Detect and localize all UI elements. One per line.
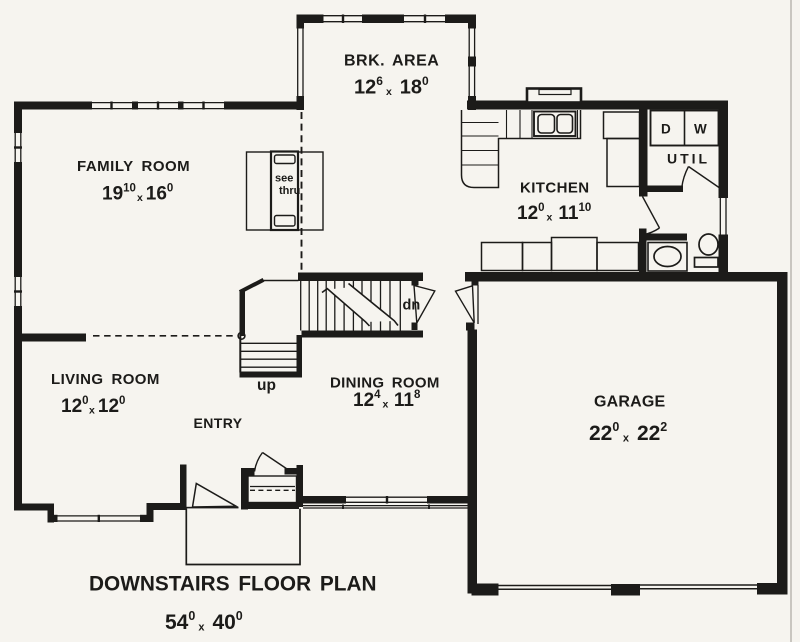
svg-text:up: up bbox=[257, 377, 276, 394]
svg-text:see: see bbox=[275, 173, 293, 185]
svg-text:FAMILY ROOM: FAMILY ROOM bbox=[77, 158, 190, 175]
svg-text:GARAGE: GARAGE bbox=[594, 394, 666, 411]
svg-text:W: W bbox=[694, 122, 707, 137]
svg-text:D: D bbox=[661, 122, 671, 137]
svg-text:DINING ROOM: DINING ROOM bbox=[330, 375, 440, 392]
svg-text:thru: thru bbox=[279, 185, 300, 197]
svg-text:BRK. AREA: BRK. AREA bbox=[344, 53, 439, 70]
svg-text:ENTRY: ENTRY bbox=[194, 415, 243, 431]
svg-text:UTIL: UTIL bbox=[667, 151, 710, 167]
svg-text:dn: dn bbox=[403, 298, 421, 314]
svg-text:KITCHEN: KITCHEN bbox=[520, 180, 589, 197]
svg-text:DOWNSTAIRS FLOOR PLAN: DOWNSTAIRS FLOOR PLAN bbox=[89, 573, 377, 596]
svg-text:LIVING ROOM: LIVING ROOM bbox=[51, 371, 160, 388]
